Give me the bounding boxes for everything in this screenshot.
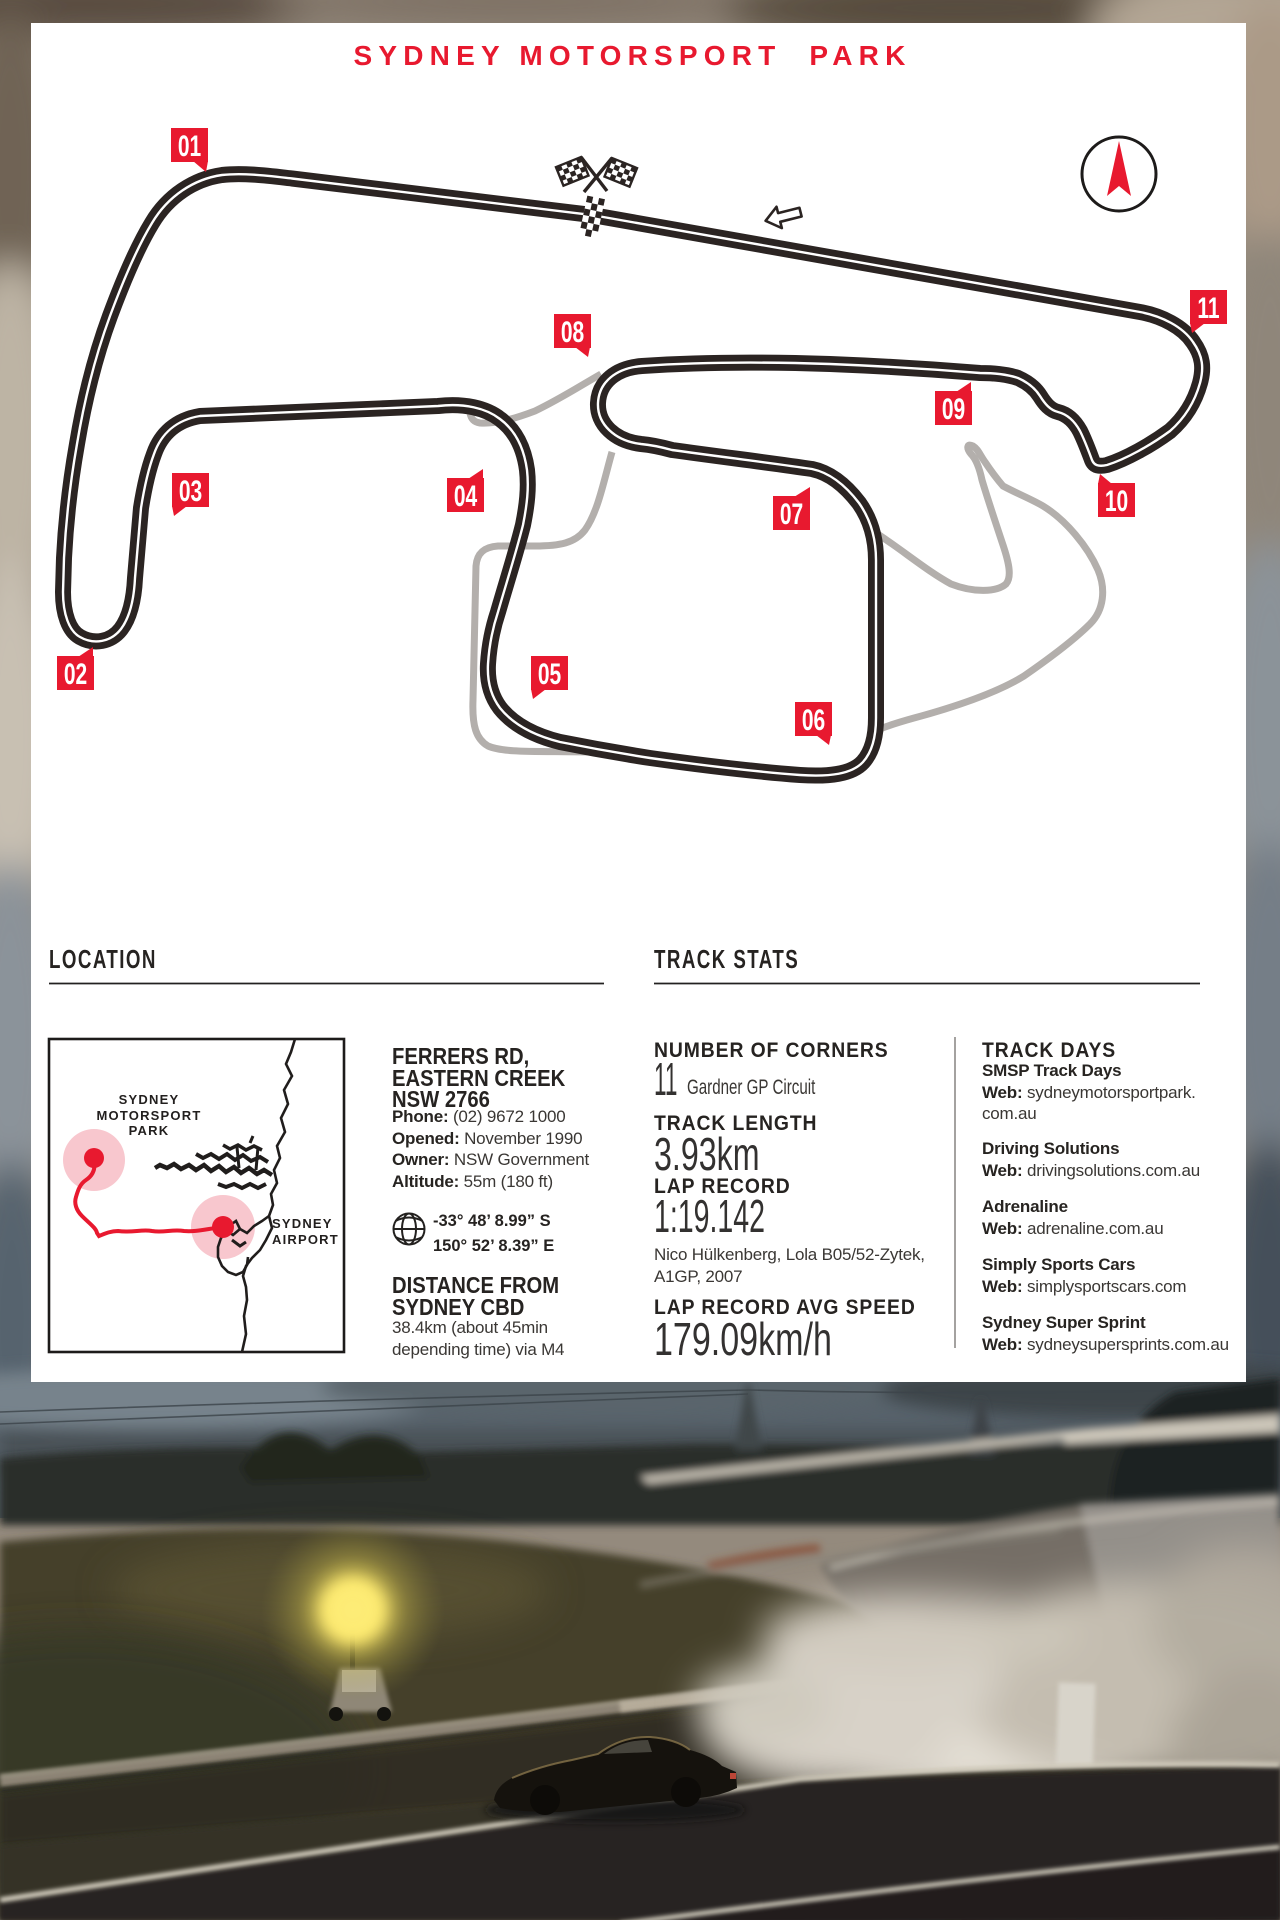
svg-text:09: 09 [942, 394, 965, 426]
svg-text:05: 05 [538, 659, 561, 691]
svg-text:07: 07 [780, 499, 803, 531]
svg-text:11: 11 [1197, 293, 1219, 325]
svg-text:04: 04 [454, 481, 478, 513]
svg-text:02: 02 [64, 659, 87, 691]
svg-text:03: 03 [179, 476, 202, 508]
svg-text:01: 01 [178, 131, 201, 163]
svg-text:10: 10 [1105, 486, 1128, 518]
svg-text:06: 06 [802, 705, 825, 737]
svg-text:08: 08 [561, 317, 584, 349]
